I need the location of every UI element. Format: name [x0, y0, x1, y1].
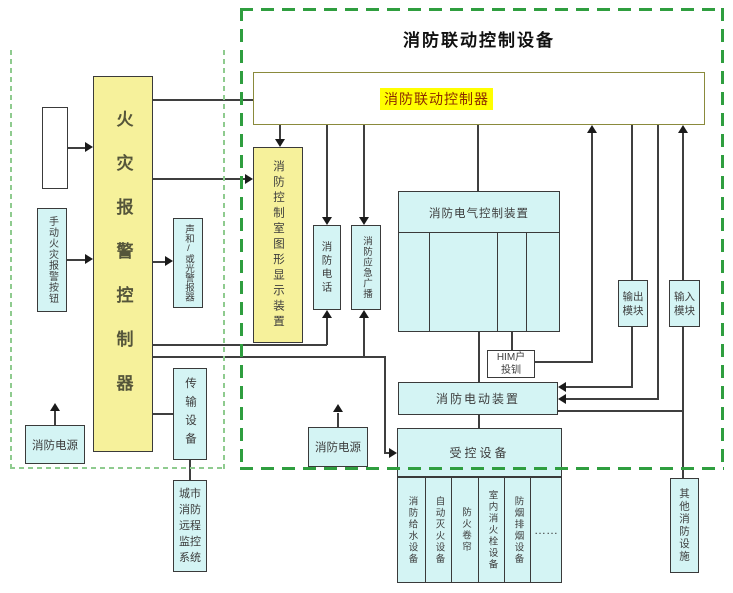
arrowhead [333, 404, 343, 412]
fire-phone-box: 消防电话 [313, 225, 341, 310]
sounder-label: 声和/或光警报器 [181, 224, 195, 302]
fire-power-right-box: 消防电源 [308, 427, 368, 467]
linkage-region-border-left [240, 8, 243, 470]
input-module-label: 输入模块 [670, 290, 699, 318]
input-module-box: 输入模块 [669, 280, 700, 327]
connector-line [189, 460, 191, 480]
electric-device-label: 消防电动装置 [436, 390, 520, 407]
linkage-region-border-top [240, 8, 724, 11]
electric-control-divider [399, 232, 559, 233]
controlled-item-label: 防烟排烟设备 [511, 496, 525, 565]
connector-line [478, 332, 480, 382]
left-region-border-bottom [10, 467, 225, 469]
transmission-label: 传输设备 [182, 377, 198, 451]
arrowhead [587, 125, 597, 133]
connector-line [337, 413, 339, 427]
arrowhead [165, 256, 173, 266]
controlled-item-label: 消防给水设备 [405, 496, 419, 565]
arrowhead [359, 217, 369, 225]
arrowhead [85, 254, 93, 264]
arrowhead [275, 139, 285, 147]
linkage-title: 消防联动控制设备 [253, 26, 705, 51]
left-region-border-left [10, 50, 12, 470]
arrowhead [678, 125, 688, 133]
connector-line [153, 413, 173, 415]
connector-line [591, 132, 593, 363]
connector-line [535, 361, 593, 363]
connector-line [511, 332, 513, 350]
controlled-item-label: 自动灭火设备 [432, 496, 446, 565]
controlled-item-cell: 防烟排烟设备 [505, 478, 531, 582]
graphic-display-label: 消防控制室图形显示装置 [270, 160, 286, 331]
other-facilities-label: 其他消防设施 [677, 488, 692, 563]
connector-line [67, 259, 86, 261]
connector-line [326, 317, 328, 345]
connector-line [477, 125, 479, 191]
connector-line [68, 147, 86, 149]
him-label-line2: 投钏 [501, 364, 521, 377]
emergency-broadcast-box: 消防应急广播 [351, 225, 381, 310]
sounder-box: 声和/或光警报器 [173, 218, 203, 308]
connector-line [153, 178, 246, 180]
fire-power-left-label: 消防电源 [32, 437, 78, 453]
city-monitoring-label: 城市消防远程监控系统 [174, 486, 206, 566]
connector-line [363, 125, 365, 218]
fire-power-right-label: 消防电源 [315, 439, 361, 455]
graphic-display-box: 消防控制室图形显示装置 [253, 147, 303, 343]
connector-line [326, 125, 328, 218]
fire-power-left-box: 消防电源 [25, 425, 85, 464]
fire-alarm-controller-box: 火灾报警控制器 [93, 76, 153, 452]
connector-line [558, 410, 684, 412]
connector-line [478, 415, 480, 428]
linkage-title-text: 消防联动控制设备 [403, 31, 555, 50]
connector-line [657, 125, 659, 400]
fire-phone-label: 消防电话 [320, 241, 335, 295]
controlled-item-cell: …… [531, 478, 561, 582]
him-box: HIM户 投钏 [487, 350, 535, 378]
connector-line [54, 410, 56, 425]
controlled-item-label: 防火卷帘 [458, 507, 472, 553]
connector-line [565, 386, 633, 388]
linkage-controller-box: 消防联动控制器 [253, 72, 705, 125]
electric-control-label: 消防电气控制装置 [429, 205, 529, 221]
arrowhead [322, 310, 332, 318]
electric-control-divider [497, 232, 498, 331]
controlled-item-cell: 防火卷帘 [452, 478, 479, 582]
city-monitoring-box: 城市消防远程监控系统 [173, 480, 207, 572]
connector-line [565, 398, 659, 400]
transmission-box: 传输设备 [173, 368, 207, 460]
electric-control-divider [526, 232, 527, 331]
manual-call-point-box: 手动火灾报警按钮 [37, 208, 67, 312]
controlled-equipment-label: 受控设备 [449, 444, 509, 461]
arrowhead [558, 382, 566, 392]
other-facilities-box: 其他消防设施 [670, 478, 699, 573]
arrowhead [359, 310, 369, 318]
controlled-items-row: 消防给水设备 自动灭火设备 防火卷帘 室内消火栓设备 防烟排烟设备 …… [397, 477, 562, 583]
controlled-item-label: 室内消火栓设备 [485, 490, 499, 571]
connector-line [279, 125, 281, 140]
arrowhead [322, 217, 332, 225]
left-region-border-right [223, 50, 225, 470]
controlled-item-label: …… [534, 523, 558, 537]
arrowhead [50, 403, 60, 411]
fire-alarm-controller-label: 火灾报警控制器 [111, 110, 136, 418]
connector-line [153, 99, 254, 101]
arrowhead [558, 394, 566, 404]
connector-line [363, 317, 365, 357]
arrowhead [389, 448, 397, 458]
emergency-broadcast-label: 消防应急广播 [359, 236, 373, 299]
detector-box [42, 107, 68, 189]
output-module-box: 输出模块 [618, 280, 648, 327]
manual-call-point-label: 手动火灾报警按钮 [45, 216, 60, 304]
controlled-item-cell: 消防给水设备 [398, 478, 426, 582]
electric-control-divider [429, 232, 430, 331]
arrowhead [85, 142, 93, 152]
linkage-controller-label: 消防联动控制器 [380, 88, 493, 110]
electric-device-box: 消防电动装置 [398, 382, 558, 415]
arrowhead [245, 174, 253, 184]
connector-line [384, 356, 386, 454]
fire-linkage-diagram: 手动火灾报警按钮 火灾报警控制器 声和/或光警报器 传输设备 城市消防远程监控系… [0, 0, 733, 593]
linkage-region-border-right [721, 8, 724, 470]
him-label-line1: HIM户 [497, 351, 525, 364]
controlled-item-cell: 室内消火栓设备 [479, 478, 505, 582]
controlled-item-cell: 自动灭火设备 [426, 478, 452, 582]
connector-line [631, 125, 633, 388]
electric-control-box: 消防电气控制装置 [398, 191, 560, 332]
output-module-label: 输出模块 [619, 290, 647, 318]
connector-line [153, 356, 386, 358]
linkage-region-border-bottom [240, 467, 724, 470]
